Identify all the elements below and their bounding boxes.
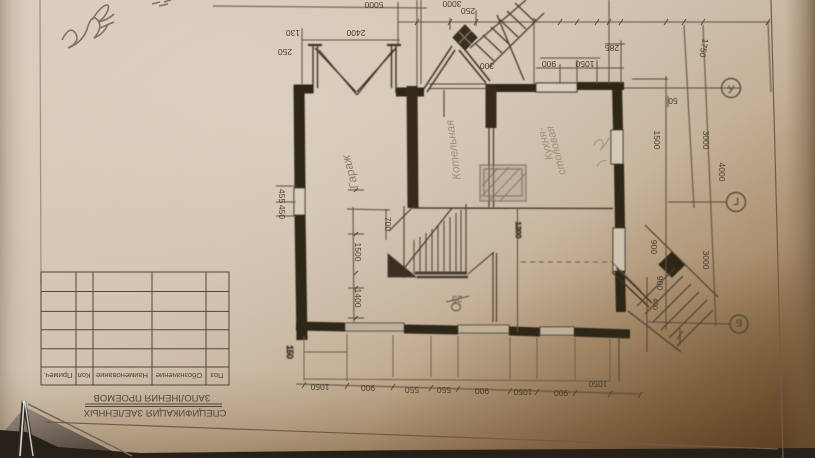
svg-text:1400: 1400 xyxy=(353,289,363,308)
svg-text:Кол: Кол xyxy=(78,371,91,380)
svg-text:900: 900 xyxy=(554,388,568,398)
svg-text:Наименование: Наименование xyxy=(96,371,148,380)
svg-text:900: 900 xyxy=(361,383,375,393)
svg-text:Примеч.: Примеч. xyxy=(44,371,73,380)
svg-text:1500: 1500 xyxy=(353,243,363,262)
svg-text:Поз: Поз xyxy=(210,371,223,380)
svg-text:3000: 3000 xyxy=(442,0,461,9)
svg-text:5000: 5000 xyxy=(364,0,383,10)
svg-text:455: 455 xyxy=(277,189,287,203)
svg-text:У: У xyxy=(728,84,736,96)
svg-text:3000: 3000 xyxy=(701,251,711,270)
svg-text:400: 400 xyxy=(651,298,658,310)
svg-text:700: 700 xyxy=(383,217,393,231)
svg-text:ЗАПОЛНЕНИЯ ПРОЕМОВ: ЗАПОЛНЕНИЯ ПРОЕМОВ xyxy=(93,392,210,403)
svg-text:900: 900 xyxy=(475,386,489,396)
svg-text:4000: 4000 xyxy=(717,163,727,182)
svg-text:1050: 1050 xyxy=(588,379,607,389)
svg-text:550: 550 xyxy=(437,385,451,395)
svg-text:Г: Г xyxy=(733,195,739,207)
svg-text:СПЕЦИФИКАЦИЯ ЗАЕЛЕННЫХ: СПЕЦИФИКАЦИЯ ЗАЕЛЕННЫХ xyxy=(83,407,226,418)
svg-text:150: 150 xyxy=(285,345,294,359)
svg-text:3000: 3000 xyxy=(701,131,711,150)
svg-text:Обозначение: Обозначение xyxy=(156,371,202,380)
svg-text:1200: 1200 xyxy=(514,222,523,239)
svg-text:900: 900 xyxy=(542,59,556,69)
svg-text:Б: Б xyxy=(735,317,742,328)
svg-text:900: 900 xyxy=(649,240,659,254)
svg-text:285: 285 xyxy=(605,43,619,53)
svg-text:1050: 1050 xyxy=(575,59,594,69)
svg-text:50: 50 xyxy=(668,96,678,106)
svg-text:1050: 1050 xyxy=(513,387,532,397)
svg-text:550: 550 xyxy=(405,385,419,395)
svg-text:1500: 1500 xyxy=(652,131,662,150)
svg-text:300: 300 xyxy=(480,61,494,71)
svg-text:450: 450 xyxy=(277,205,287,219)
svg-text:900: 900 xyxy=(655,276,665,290)
svg-text:1050: 1050 xyxy=(310,382,329,392)
svg-text:2400: 2400 xyxy=(346,28,365,38)
svg-text:250: 250 xyxy=(278,47,292,57)
svg-text:250: 250 xyxy=(461,6,475,16)
svg-text:25: 25 xyxy=(452,294,462,304)
svg-text:130: 130 xyxy=(286,28,300,38)
